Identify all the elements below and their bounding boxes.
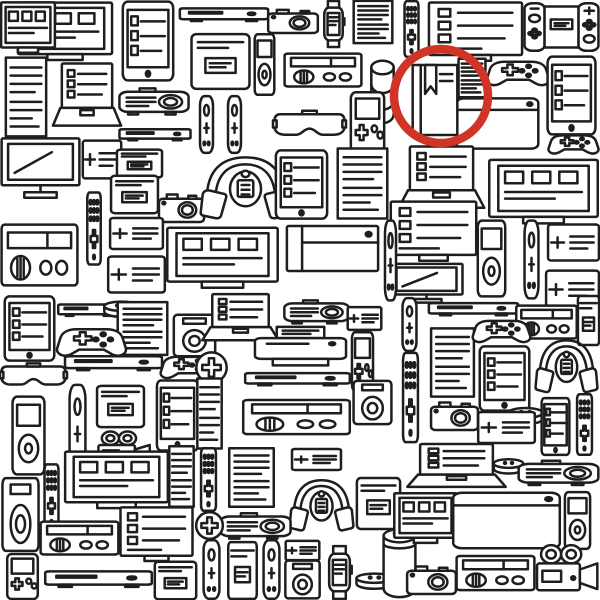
controller-stick-icon	[385, 221, 396, 301]
photo-camera-icon	[268, 10, 318, 33]
tv-on-stand-icon	[2, 138, 80, 197]
monitor-with-windows-icon	[394, 493, 456, 543]
radio-icon	[285, 54, 362, 87]
remote-control-icon	[45, 464, 59, 528]
photo-camera-icon	[431, 402, 478, 430]
music-player-icon	[478, 221, 505, 297]
controller-stick-icon	[525, 221, 539, 299]
device-icons-layer	[0, 1, 599, 599]
projector-icon	[119, 88, 188, 114]
headphones-with-player-icon	[536, 340, 598, 392]
controller-stick-icon	[264, 540, 280, 599]
monitor-with-windows-icon	[489, 160, 597, 224]
card-device-icon	[155, 562, 196, 599]
media-console-icon	[245, 373, 350, 385]
game-controller-icon	[57, 329, 126, 355]
note-card-icon	[292, 449, 341, 470]
headphones-with-player-icon	[290, 480, 354, 530]
game-controller-icon	[548, 135, 598, 153]
tablet-icon	[548, 57, 596, 135]
handheld-game-icon	[7, 554, 38, 599]
smartwatch-icon	[329, 546, 352, 599]
document-page-icon	[197, 378, 221, 448]
tablet-icon	[480, 346, 530, 410]
laptop-icon	[53, 63, 121, 125]
speaker-icon	[354, 381, 392, 424]
note-card-icon	[286, 541, 320, 560]
music-player-icon	[13, 397, 45, 475]
controller-stick-icon	[403, 298, 417, 351]
card-device-icon	[97, 386, 144, 427]
controller-stick-icon	[200, 96, 213, 153]
monitor-with-windows-icon	[167, 228, 277, 288]
laptop-icon	[407, 444, 505, 487]
monitor-with-windows-icon	[1, 2, 55, 52]
tablet-icon	[5, 296, 55, 360]
card-device-icon	[117, 150, 162, 178]
document-page-icon	[354, 1, 393, 43]
tablet-icon	[276, 150, 327, 218]
radio-icon	[41, 522, 119, 555]
speaker-icon	[2, 478, 38, 551]
media-console-icon	[429, 303, 518, 315]
game-controller-icon	[487, 62, 549, 85]
note-card-icon	[108, 256, 165, 292]
smartwatch-icon	[324, 1, 344, 47]
speaker-icon	[285, 561, 319, 599]
music-player-icon	[255, 34, 275, 94]
game-console-slab-icon	[287, 226, 378, 271]
note-card-icon	[348, 307, 382, 330]
controller-stick-icon	[228, 96, 241, 153]
device-box-icon	[457, 98, 539, 148]
note-card-icon	[548, 224, 599, 260]
card-device-icon	[192, 34, 250, 89]
handheld-game-icon	[351, 92, 384, 152]
gadget-pattern-canvas	[0, 0, 600, 600]
tablet-icon	[123, 2, 173, 81]
media-console-icon	[180, 8, 268, 21]
tv-on-stand-icon	[391, 264, 463, 303]
remote-control-icon	[201, 448, 216, 510]
radio-icon	[2, 225, 78, 286]
document-page-icon	[169, 446, 193, 506]
remote-control-icon	[577, 394, 592, 454]
monitor-with-checklist-icon	[391, 202, 476, 261]
radio-icon	[243, 400, 350, 434]
device-box-icon	[453, 493, 560, 548]
card-device-icon	[578, 296, 599, 345]
projector-icon	[284, 300, 348, 323]
note-card-icon	[83, 141, 121, 179]
remote-control-icon	[405, 1, 419, 57]
media-console-icon	[45, 571, 152, 587]
book-with-bookmark-icon	[413, 65, 458, 135]
document-page-icon	[6, 58, 46, 137]
monitor-with-checklist-icon	[121, 507, 193, 561]
plus-badge-icon	[196, 512, 223, 539]
remote-control-icon	[403, 353, 418, 442]
tablet-icon	[157, 380, 198, 450]
laptop-icon	[399, 146, 485, 207]
photo-camera-icon	[407, 566, 456, 594]
media-console-icon	[65, 356, 162, 370]
hidden-object-puzzle	[0, 0, 600, 600]
tablet-icon	[542, 398, 570, 455]
controller-stick-icon	[204, 540, 220, 599]
document-page-icon	[431, 328, 474, 396]
note-card-icon	[478, 412, 535, 443]
radio-icon	[457, 556, 535, 590]
photo-camera-icon	[159, 194, 204, 222]
note-card-icon	[110, 218, 163, 249]
vr-headset-icon	[273, 111, 346, 135]
music-player-icon	[565, 492, 590, 549]
handheld-game-console-icon	[525, 3, 599, 51]
laptop-icon	[202, 294, 278, 340]
vr-headset-icon	[0, 363, 67, 384]
media-console-icon	[119, 129, 190, 140]
projector-icon	[220, 513, 290, 538]
remote-control-icon	[87, 193, 100, 265]
video-camera-icon	[537, 545, 597, 590]
document-page-icon	[338, 148, 388, 218]
monitor-with-windows-icon	[65, 452, 168, 509]
card-device-icon	[111, 176, 158, 213]
document-page-icon	[229, 448, 274, 507]
game-controller-icon	[473, 321, 531, 342]
card-device-icon	[228, 542, 257, 599]
projector-icon	[519, 461, 599, 485]
